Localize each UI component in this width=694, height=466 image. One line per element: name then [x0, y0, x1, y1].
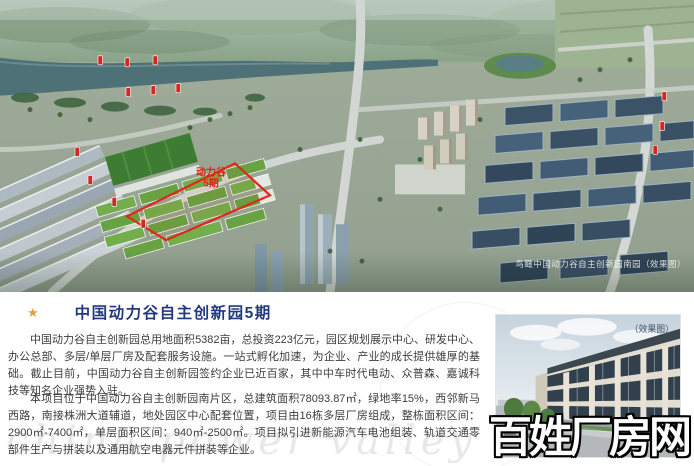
top-right-fields — [555, 0, 694, 68]
photo-label: （效果图） — [630, 323, 674, 334]
map-pin-icon — [176, 84, 181, 93]
map-pin-icon — [112, 197, 117, 206]
map-pin-icon — [98, 56, 103, 65]
map-pin-icon — [75, 147, 80, 156]
map-pin-icon — [153, 56, 158, 65]
page-title: 中国动力谷自主创新园5期 — [75, 301, 272, 323]
map-pin-icon — [662, 92, 667, 101]
map-pin-icon — [126, 88, 131, 97]
map-pin-icon — [653, 146, 658, 155]
map-pin-icon — [141, 219, 146, 228]
map-pin-icon — [88, 175, 93, 184]
map-pin-icon — [151, 86, 156, 95]
area-label-line2: 5期 — [203, 176, 219, 189]
pond — [484, 53, 556, 79]
bottom-shade — [0, 251, 694, 292]
site-watermark: 百姓厂房网 — [489, 403, 689, 465]
article-header: ★ 中国动力谷自主创新园5期 — [27, 301, 272, 323]
aerial-scene: 动力谷 5期 鸟瞰中国动力谷自主创新园南园（效果图） — [0, 0, 694, 292]
star-icon: ★ — [27, 306, 39, 319]
map-pin-icon — [660, 122, 665, 131]
area-label-line1: 动力谷 — [196, 165, 227, 178]
promo-page: 动力谷 5期 鸟瞰中国动力谷自主创新园南园（效果图） — [0, 0, 694, 466]
aerial-caption: 鸟瞰中国动力谷自主创新园南园（效果图） — [515, 259, 686, 269]
intro-paragraph: 中国动力谷自主创新园总用地面积5382亩，总投资223亿元，园区规划展示中心、研… — [8, 332, 480, 400]
detail-paragraph: 本项目位于中国动力谷自主创新园南片区，总建筑面积78093.87㎡，绿地率15%… — [8, 391, 480, 459]
aerial-rendering: 动力谷 5期 鸟瞰中国动力谷自主创新园南园（效果图） — [0, 0, 694, 292]
map-pin-icon — [125, 58, 130, 67]
